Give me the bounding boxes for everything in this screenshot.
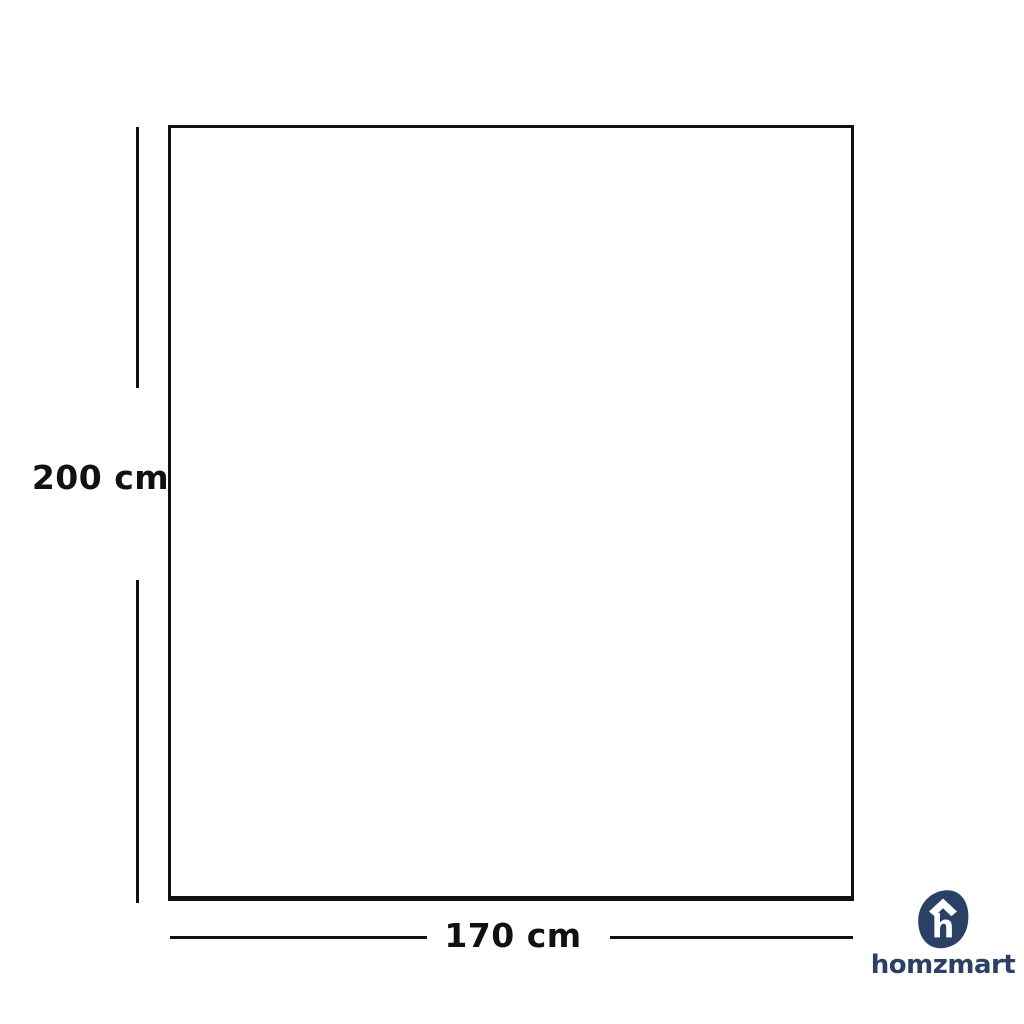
width-dimension-line-left xyxy=(170,936,427,939)
height-dimension-line-upper xyxy=(136,127,139,388)
height-dimension-label: 200 cm xyxy=(28,458,173,497)
width-dimension-label: 170 cm xyxy=(433,916,593,955)
logo-letter: h xyxy=(932,910,955,946)
homzmart-house-h-icon: h xyxy=(915,888,971,950)
height-dimension-line-lower xyxy=(136,580,139,903)
homzmart-wordmark: homzmart xyxy=(868,952,1018,978)
product-outline xyxy=(168,125,854,901)
homzmart-logo: h homzmart xyxy=(868,888,1018,988)
width-dimension-line-right xyxy=(610,936,853,939)
product-dimension-image: 200 cm 170 cm h homzmart xyxy=(0,0,1024,1024)
